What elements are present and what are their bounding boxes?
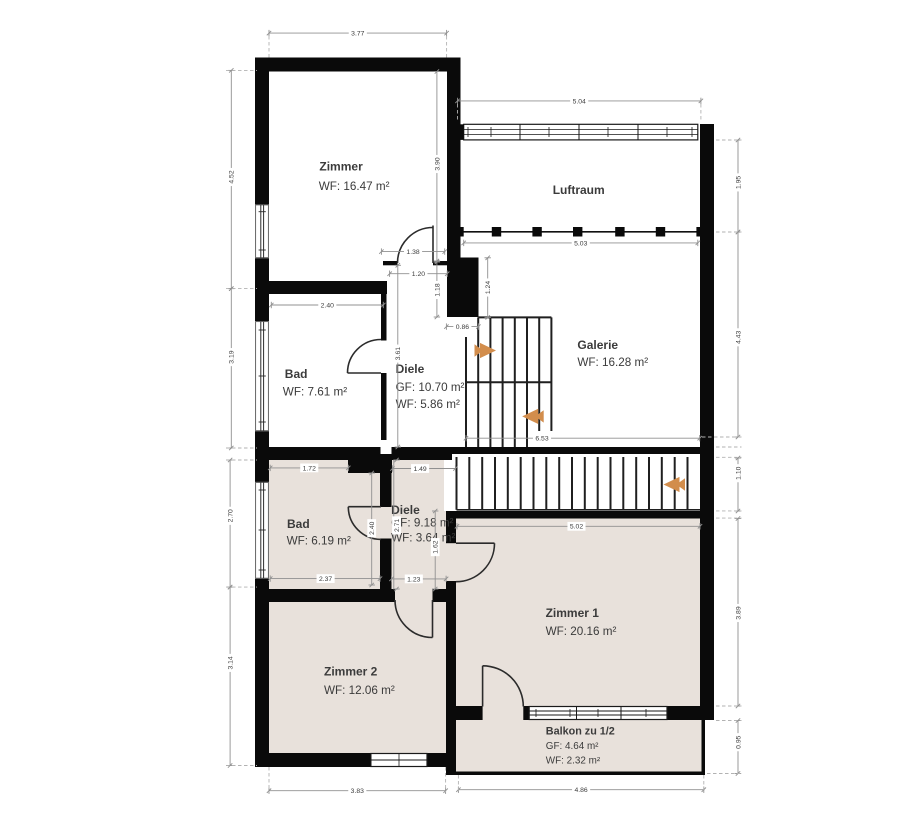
svg-text:0.95: 0.95	[735, 735, 742, 748]
svg-text:1.20: 1.20	[412, 271, 425, 278]
svg-text:1.24: 1.24	[485, 281, 492, 294]
svg-text:Galerie: Galerie	[577, 338, 618, 352]
svg-text:2.40: 2.40	[369, 521, 376, 534]
svg-text:1.38: 1.38	[406, 249, 419, 256]
svg-text:1.18: 1.18	[434, 283, 441, 296]
svg-text:1.49: 1.49	[413, 466, 426, 473]
svg-text:WF: 6.19 m²: WF: 6.19 m²	[287, 534, 351, 547]
svg-text:0.86: 0.86	[456, 324, 469, 331]
svg-text:5.02: 5.02	[570, 524, 583, 531]
svg-text:3.90: 3.90	[434, 157, 441, 170]
svg-text:Luftraum: Luftraum	[553, 183, 605, 197]
svg-text:3.19: 3.19	[229, 350, 236, 363]
svg-text:Zimmer: Zimmer	[319, 160, 363, 174]
svg-text:Bad: Bad	[285, 367, 308, 381]
svg-text:GF: 4.64 m²: GF: 4.64 m²	[546, 741, 599, 752]
svg-text:Zimmer 2: Zimmer 2	[324, 665, 378, 679]
svg-text:4.43: 4.43	[735, 330, 742, 343]
svg-text:1.72: 1.72	[303, 465, 316, 472]
svg-text:2.70: 2.70	[228, 509, 235, 522]
svg-text:Diele: Diele	[391, 503, 420, 517]
svg-text:5.04: 5.04	[573, 98, 586, 105]
svg-text:1.62: 1.62	[433, 540, 440, 553]
svg-text:WF: 5.86 m²: WF: 5.86 m²	[396, 398, 460, 411]
svg-text:4.52: 4.52	[229, 170, 236, 183]
svg-text:Zimmer 1: Zimmer 1	[546, 606, 600, 620]
svg-text:2.37: 2.37	[319, 576, 332, 583]
svg-text:WF: 16.47 m²: WF: 16.47 m²	[319, 180, 390, 193]
svg-text:3.89: 3.89	[735, 606, 742, 619]
svg-text:WF: 16.28 m²: WF: 16.28 m²	[577, 356, 648, 369]
svg-text:Diele: Diele	[396, 362, 425, 376]
svg-text:3.83: 3.83	[351, 788, 364, 795]
svg-text:GF: 10.70 m²: GF: 10.70 m²	[396, 381, 465, 394]
svg-text:6.53: 6.53	[535, 436, 548, 443]
svg-text:3.14: 3.14	[228, 656, 235, 669]
svg-text:Bad: Bad	[287, 517, 310, 531]
svg-text:WF: 2.32 m²: WF: 2.32 m²	[546, 756, 601, 767]
svg-text:WF: 12.06 m²: WF: 12.06 m²	[324, 684, 395, 697]
svg-text:2.71: 2.71	[394, 519, 401, 532]
svg-text:1.10: 1.10	[735, 466, 742, 479]
svg-text:5.03: 5.03	[574, 240, 587, 247]
svg-text:3.77: 3.77	[351, 31, 364, 38]
svg-text:Balkon zu 1/2: Balkon zu 1/2	[546, 725, 615, 737]
svg-text:1.23: 1.23	[407, 576, 420, 583]
svg-text:2.40: 2.40	[321, 302, 334, 309]
svg-text:4.86: 4.86	[574, 787, 587, 794]
svg-text:WF: 20.16 m²: WF: 20.16 m²	[546, 625, 617, 638]
svg-text:3.61: 3.61	[395, 347, 402, 360]
svg-text:WF: 7.61 m²: WF: 7.61 m²	[283, 385, 347, 398]
svg-text:1.95: 1.95	[735, 176, 742, 189]
